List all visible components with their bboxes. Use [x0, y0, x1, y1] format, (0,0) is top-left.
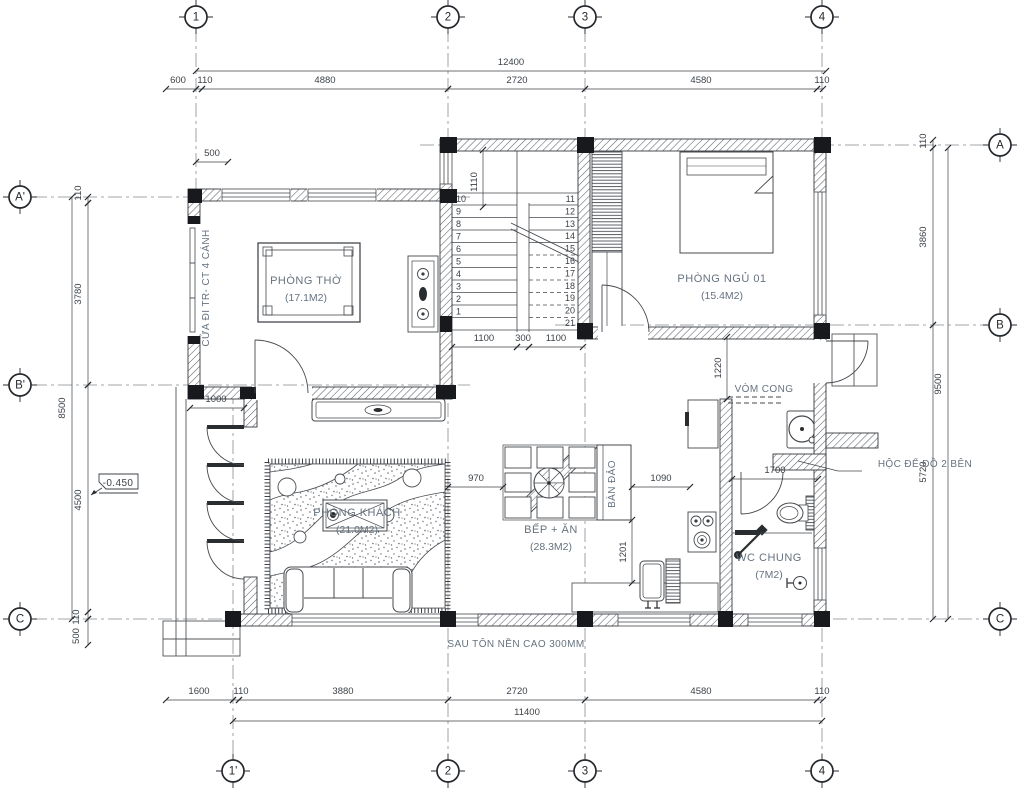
grid-bubble: 3: [568, 754, 602, 788]
dimension: 2720: [445, 75, 588, 92]
dimension-text: 110: [233, 686, 248, 697]
grid-bubble-label: C: [996, 614, 1004, 626]
grid-bubble: 2: [431, 0, 465, 34]
door-folding-4-leaf: [207, 425, 244, 579]
grid-bubble-label: 2: [445, 12, 451, 24]
floor-plan-page: 1240060011048802720458011016001103880272…: [0, 0, 1024, 790]
annotation-text: SAU TÔN NỀN CAO 300MM: [447, 637, 584, 650]
dimension: 1110: [469, 147, 486, 210]
dimension-text: 2720: [506, 75, 527, 86]
grid-bubble-label: 4: [819, 12, 826, 24]
room-area: (28.3M2): [530, 541, 572, 553]
annotation-text: HỘC ĐỂ ĐỒ 2 BÊN: [878, 457, 972, 470]
wc-partition: [732, 530, 812, 535]
grid-bubble-label: 3: [582, 12, 588, 24]
grid-bubble-label: 3: [582, 766, 588, 778]
room-name: WC CHUNG: [736, 552, 802, 564]
dimension-text: 300: [515, 333, 531, 344]
dimension-text: 600: [170, 75, 186, 86]
stair-step-number: 8: [456, 219, 461, 229]
grid-bubble: 2: [431, 754, 465, 788]
dimension: 4580: [582, 686, 820, 703]
stair-step-number: 9: [456, 207, 461, 217]
stair-step-number: 1: [456, 307, 461, 317]
dimension: 3780: [73, 200, 91, 388]
grid-bubble: 1': [216, 754, 250, 788]
grid-bubble: A': [3, 180, 37, 214]
fridge: [685, 400, 718, 448]
dimension-text: 500: [71, 628, 82, 644]
dimension: 4880: [199, 75, 451, 92]
dimension-text: 3860: [918, 226, 929, 247]
dimension: 110: [814, 686, 830, 703]
room-area: (17.1M2): [285, 292, 327, 304]
dimension-text: 11400: [514, 707, 540, 718]
annotation: CỬA ĐI TR- CT 4 CÁNH: [199, 229, 212, 346]
dimension: 3860: [918, 145, 936, 328]
stair-step-number: 4: [456, 269, 461, 279]
grid-bubble: 4: [805, 754, 839, 788]
dimension: 11400: [230, 707, 825, 724]
grid-bubble-label: 4: [819, 766, 826, 778]
dimension-text: 3880: [332, 686, 353, 697]
dimension-text: 110: [814, 686, 829, 697]
sofa: [284, 567, 412, 614]
dimension: 110: [814, 75, 830, 92]
dimension-text: 12400: [498, 57, 524, 68]
dimension: 1100: [449, 333, 520, 350]
door-wc: [741, 472, 783, 514]
wc-sink: [787, 577, 807, 590]
dimension-text: 9500: [933, 373, 944, 394]
stair-step-number: 18: [565, 281, 575, 291]
dimension: 970: [445, 473, 506, 490]
dimension: 3880: [236, 686, 451, 703]
grid-bubble-label: 1': [229, 766, 238, 778]
stair-step-number: 17: [565, 268, 575, 278]
dimension-text: 500: [204, 148, 220, 159]
dimension: 4580: [582, 75, 820, 92]
dimension-text: 2720: [506, 686, 527, 697]
stair-step-number: 5: [456, 257, 461, 267]
room-label: BẾP + ĂN(28.3M2): [524, 523, 578, 553]
dimension-text: 110: [918, 133, 929, 148]
annotation: HỘC ĐỂ ĐỒ 2 BÊN: [878, 457, 972, 470]
room-area: (7M2): [755, 569, 782, 581]
dimension-text: 110: [197, 75, 212, 86]
dimension-text: 1110: [469, 172, 480, 192]
stair-step-number: 12: [565, 206, 575, 216]
room-area: (21.0M2): [336, 524, 378, 536]
grid-bubble: 3: [568, 0, 602, 34]
room-name: PHÒNG KHÁCH: [313, 506, 400, 519]
stair-step-number: 10: [456, 194, 466, 204]
dimension: 600: [163, 75, 199, 92]
dimension-text: 8500: [57, 397, 68, 418]
stair-step-number: 21: [565, 318, 575, 328]
dimension-text: 1100: [546, 333, 566, 344]
floor-plan-canvas: 1240060011048802720458011016001103880272…: [0, 0, 1024, 790]
annotation: VÒM CONG: [735, 382, 794, 395]
stair-step-number: 15: [565, 244, 575, 254]
stair-step-number: 6: [456, 244, 461, 254]
annotation-text: VÒM CONG: [735, 382, 794, 395]
room-name: PHÒNG NGỦ 01: [677, 272, 766, 285]
annotation: -0.450: [91, 474, 138, 495]
dimension: 1090: [629, 473, 693, 490]
dimension: 500: [193, 148, 231, 165]
grid-bubble: C: [3, 602, 37, 636]
toilet: [777, 496, 816, 530]
dimension: 5720: [918, 322, 936, 622]
wardrobe: [592, 152, 622, 330]
console-table: [312, 399, 445, 421]
room-label: PHÒNG THỜ(17.1M2): [270, 274, 342, 304]
dimension: 9500: [933, 145, 951, 622]
grid-bubble-label: A': [15, 192, 25, 204]
stair-step-number: 19: [565, 293, 575, 303]
dimension-text: 110: [73, 185, 84, 200]
stair-step-number: 20: [565, 306, 575, 316]
dimension-text: 4880: [314, 75, 335, 86]
grid-bubble: A: [983, 128, 1017, 162]
room-area: (15.4M2): [701, 290, 743, 302]
altar-cabinet: [408, 256, 438, 332]
room-name: PHÒNG THỜ: [270, 274, 342, 287]
stair-number-layer: 109876543211112131415161718192021: [456, 194, 575, 328]
stair-step-number: 7: [456, 232, 461, 242]
dimension-text: 4580: [690, 686, 711, 697]
kitchen-counter: [572, 559, 718, 612]
dimension: 2720: [445, 686, 588, 703]
dimension-text: 1201: [618, 541, 629, 562]
kitchen-table: [503, 445, 597, 520]
dimension: 1201: [618, 517, 635, 586]
dimension-text: 1090: [650, 473, 671, 484]
dimension: 1600: [163, 686, 236, 703]
room-label: PHÒNG NGỦ 01(15.4M2): [677, 272, 766, 302]
annotation: SAU TÔN NỀN CAO 300MM: [447, 637, 584, 650]
stair-step-number: 14: [565, 231, 575, 241]
grid-bubble: 1: [179, 0, 213, 34]
grid-bubble-label: B: [996, 320, 1004, 332]
grid-bubble: B': [3, 368, 37, 402]
grid-bubble: C: [983, 602, 1017, 636]
room-name: BẾP + ĂN: [524, 523, 578, 536]
dimension-text: 970: [468, 473, 484, 484]
grid-bubble-label: C: [16, 614, 24, 626]
annotation-text: BÀN ĐẢO: [605, 460, 618, 508]
annotation-text: -0.450: [103, 478, 134, 489]
stair-step-number: 2: [456, 294, 461, 304]
dimension-text: 1000: [205, 394, 226, 405]
dimension-text: 1700: [764, 465, 785, 476]
dimension-text: 4580: [690, 75, 711, 86]
stair-step-number: 16: [565, 256, 575, 266]
grid-bubble: B: [983, 308, 1017, 342]
dimension-text: 4500: [73, 489, 84, 510]
grid-bubble-layer: 12341'234A'B'CABC: [3, 0, 1017, 788]
grid-bubble: 4: [805, 0, 839, 34]
annotation: BÀN ĐẢO: [605, 460, 618, 508]
dimension-text: 1100: [474, 333, 494, 344]
stair-step-number: 13: [565, 219, 575, 229]
stair-step-number: 3: [456, 282, 461, 292]
vom-cong-arch: [728, 397, 783, 403]
dimension: 4500: [73, 382, 91, 615]
gas-stove: [688, 512, 716, 552]
dimension-text: 3780: [73, 283, 84, 304]
grid-bubble-label: 1: [193, 12, 199, 24]
dimension: 12400: [193, 57, 829, 74]
annotation-text: CỬA ĐI TR- CT 4 CÁNH: [199, 229, 212, 346]
dimension: 1220: [713, 334, 730, 402]
dimension-text: 110: [71, 609, 82, 624]
dimension: 8500: [57, 194, 75, 622]
bed: [680, 152, 773, 253]
grid-bubble-label: B': [15, 380, 25, 392]
grid-bubble-label: A: [996, 140, 1004, 152]
grid-bubble-label: 2: [445, 766, 451, 778]
dimension-text: 110: [814, 75, 829, 86]
stair-step-number: 11: [566, 194, 575, 204]
dimension-text: 1220: [713, 357, 724, 378]
dimension-text: 1600: [188, 686, 209, 697]
room-label: WC CHUNG(7M2): [736, 552, 802, 581]
